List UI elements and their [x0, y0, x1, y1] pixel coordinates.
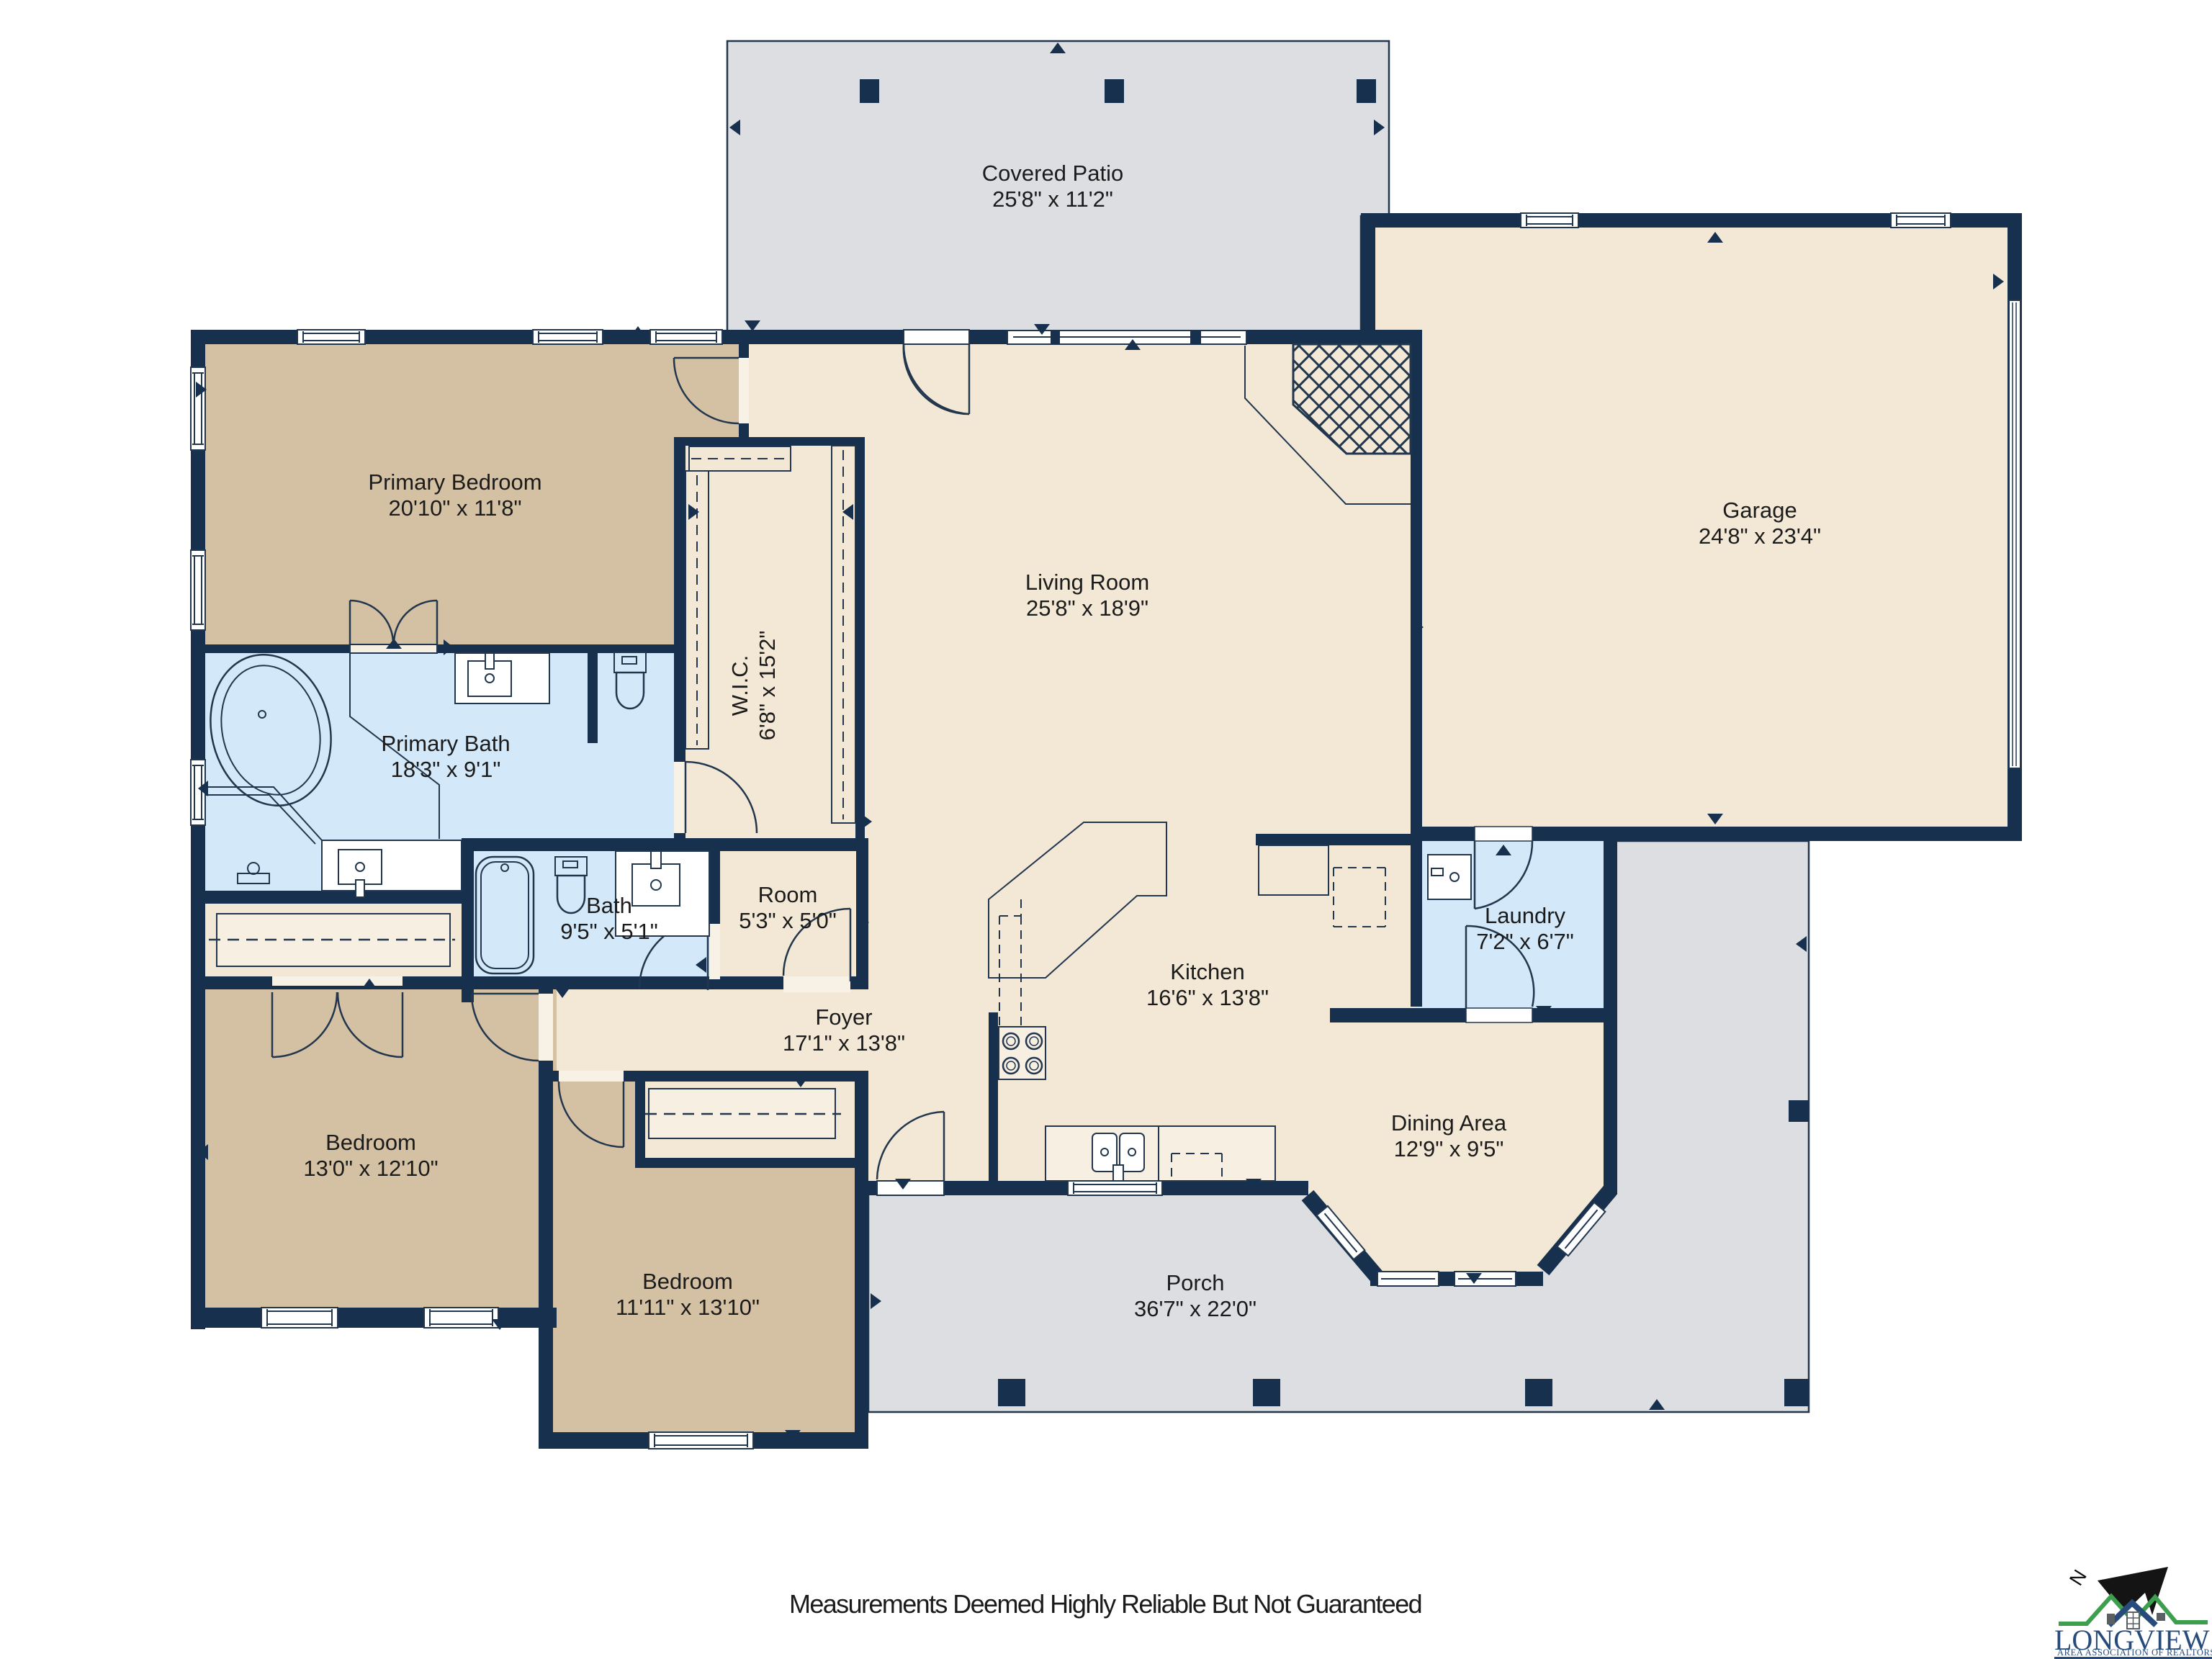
svg-text:20'10" x 11'8": 20'10" x 11'8"	[389, 495, 522, 521]
svg-text:36'7" x 22'0": 36'7" x 22'0"	[1134, 1296, 1256, 1321]
svg-text:Bedroom: Bedroom	[642, 1269, 733, 1294]
svg-text:6'8" x 15'2": 6'8" x 15'2"	[755, 631, 780, 741]
svg-text:18'3" x 9'1": 18'3" x 9'1"	[391, 757, 501, 782]
svg-text:Primary Bedroom: Primary Bedroom	[368, 469, 541, 495]
svg-text:Bath: Bath	[586, 893, 632, 918]
svg-text:Primary Bath: Primary Bath	[381, 731, 510, 756]
svg-text:24'8" x 23'4": 24'8" x 23'4"	[1699, 523, 1821, 549]
svg-text:Covered Patio: Covered Patio	[982, 161, 1123, 186]
svg-text:11'11" x 13'10": 11'11" x 13'10"	[616, 1295, 760, 1320]
svg-text:Porch: Porch	[1166, 1270, 1225, 1295]
svg-text:AREA ASSOCIATION OF REALTORS®: AREA ASSOCIATION OF REALTORS®	[2057, 1647, 2212, 1658]
svg-text:Foyer: Foyer	[815, 1004, 872, 1030]
svg-text:Garage: Garage	[1722, 498, 1797, 523]
svg-text:W.I.C.: W.I.C.	[727, 655, 752, 716]
svg-text:13'0" x 12'10": 13'0" x 12'10"	[303, 1156, 438, 1181]
svg-text:9'5" x 5'1": 9'5" x 5'1"	[560, 919, 658, 944]
svg-text:5'3" x 5'0": 5'3" x 5'0"	[739, 908, 837, 933]
svg-text:7'2" x 6'7": 7'2" x 6'7"	[1476, 929, 1574, 954]
svg-text:Measurements Deemed Highly Rel: Measurements Deemed Highly Reliable But …	[789, 1589, 1421, 1619]
svg-text:25'8" x 18'9": 25'8" x 18'9"	[1026, 595, 1148, 621]
svg-text:Laundry: Laundry	[1485, 903, 1566, 928]
svg-text:Dining Area: Dining Area	[1391, 1110, 1507, 1136]
svg-text:Living Room: Living Room	[1025, 570, 1149, 595]
svg-text:Bedroom: Bedroom	[325, 1130, 416, 1155]
svg-text:25'8" x 11'2": 25'8" x 11'2"	[992, 186, 1113, 212]
svg-text:Kitchen: Kitchen	[1170, 959, 1244, 984]
svg-text:12'9" x 9'5": 12'9" x 9'5"	[1394, 1136, 1504, 1161]
svg-text:17'1" x 13'8": 17'1" x 13'8"	[783, 1030, 905, 1056]
svg-text:Room: Room	[758, 882, 818, 907]
svg-text:16'6" x 13'8": 16'6" x 13'8"	[1146, 985, 1269, 1010]
